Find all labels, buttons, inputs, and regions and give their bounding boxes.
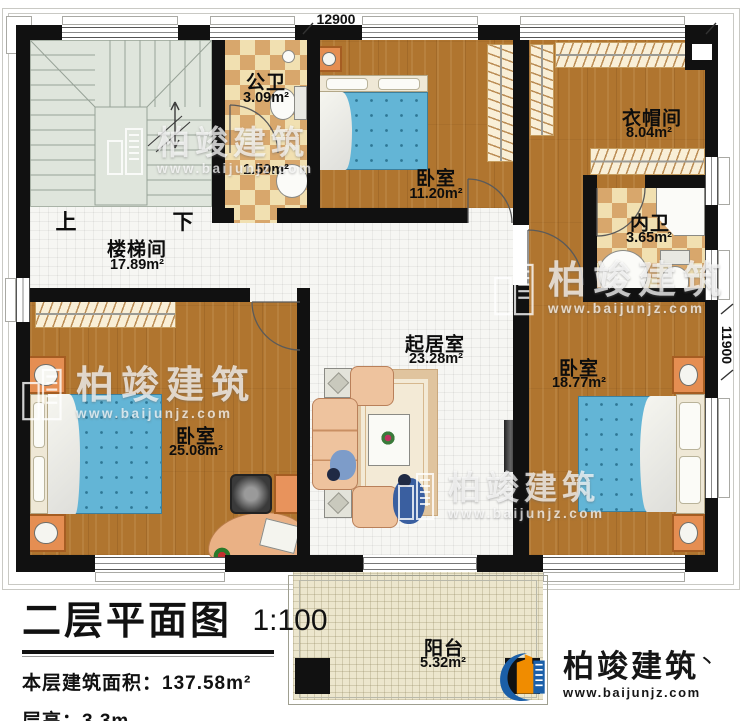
logo-brand-text: 柏竣建筑 xyxy=(563,649,699,684)
floor-plan-canvas: 12900 11900 楼梯间 17.89m² 上 下 公卫 3.09m² 1.… xyxy=(0,0,750,721)
room-area-inner-bath: 3.65m² xyxy=(626,230,672,246)
room-area-bedroom-right: 18.77m² xyxy=(552,375,606,391)
door-arc-bedroom-left xyxy=(252,302,300,350)
room-area-balcony: 5.32m² xyxy=(420,655,466,671)
floor-height-label: 层高： xyxy=(22,711,82,721)
room-area-bedroom-left: 25.08m² xyxy=(169,443,223,459)
dimension-width: 12900 xyxy=(317,11,356,27)
door-arc-suite xyxy=(528,230,583,285)
floor-area-value: 137.58m² xyxy=(162,673,251,694)
stair-down-label: 下 xyxy=(173,206,194,236)
room-area-bedroom-top: 11.20m² xyxy=(409,186,462,202)
room-area-vanity: 1.50m² xyxy=(243,162,289,178)
door-arc-public-bath xyxy=(230,105,278,153)
room-area-public-bath: 3.09m² xyxy=(243,90,289,106)
title-block: 二层平面图 1:100 本层建筑面积：137.58m² 层高：3.3m xyxy=(22,590,328,721)
plan-title: 二层平面图 xyxy=(22,590,232,646)
logo-tick-mark: 丶 xyxy=(699,654,718,671)
title-underline-thin xyxy=(22,656,274,657)
room-area-living: 23.28m² xyxy=(409,351,463,367)
room-area-cloakroom: 8.04m² xyxy=(626,125,672,141)
plan-scale: 1:100 xyxy=(252,604,327,638)
room-area-stairwell: 17.89m² xyxy=(110,257,164,273)
title-underline xyxy=(22,650,274,654)
floor-height-value: 3.3m xyxy=(82,711,129,721)
door-arc-bedroom-top xyxy=(468,179,512,223)
logo-url-text: www.baijunjz.com xyxy=(563,685,718,700)
floor-area-label: 本层建筑面积： xyxy=(22,673,162,694)
brand-logo-icon xyxy=(492,646,554,704)
dimension-height: 11900 xyxy=(719,326,735,364)
stair-up-label: 上 xyxy=(56,206,77,236)
brand-logo: 柏竣建筑丶 www.baijunjz.com xyxy=(492,646,718,704)
